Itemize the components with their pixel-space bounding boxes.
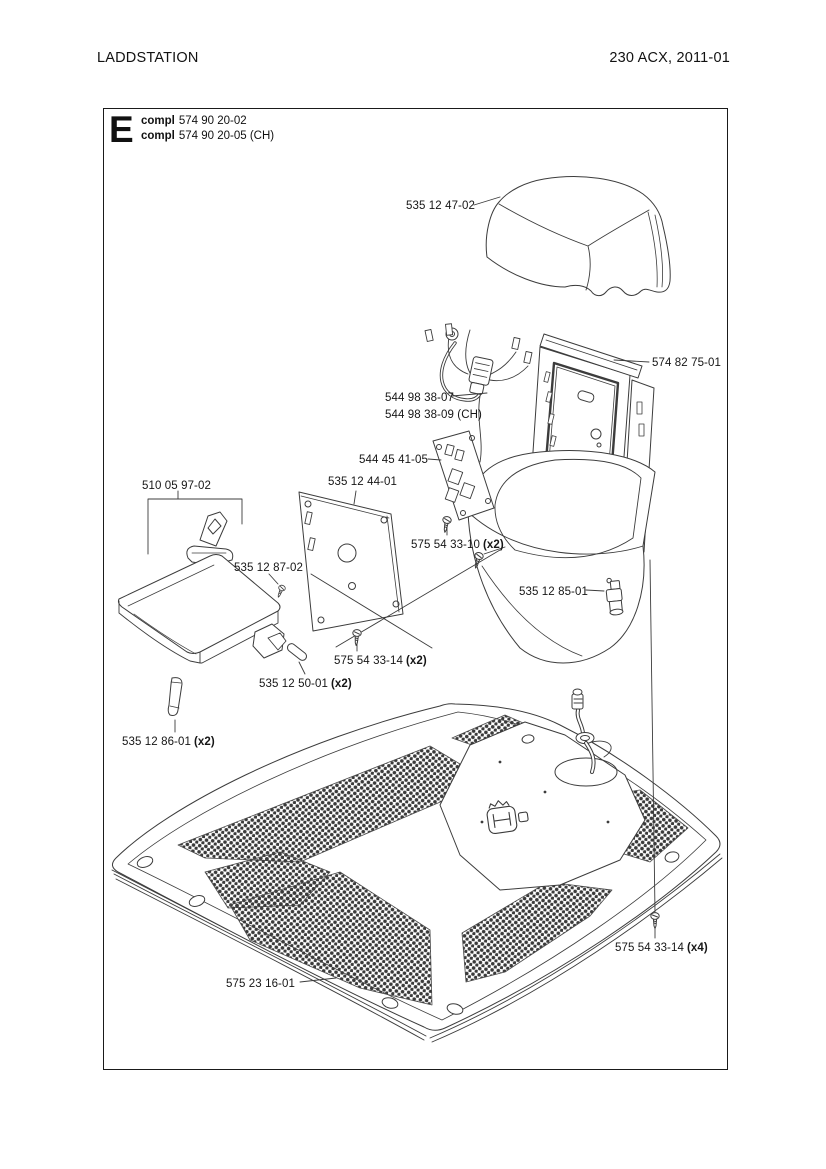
part-number: 575 54 33-14 xyxy=(334,655,403,667)
part-number: 535 12 86-01 xyxy=(122,736,191,748)
part-qty: (x2) xyxy=(194,736,215,748)
exploded-diagram xyxy=(0,0,826,1169)
part-label-mounting-plate: 535 12 44-01 xyxy=(328,475,397,489)
part-qty: (x2) xyxy=(406,655,427,667)
assembly-prefix: compl xyxy=(141,115,175,127)
part-number: 574 82 75-01 xyxy=(652,357,721,369)
assembly-value: 574 90 20-05 (CH) xyxy=(179,130,274,142)
part-number: 510 05 97-02 xyxy=(142,480,211,492)
part-number: 575 54 33-10 xyxy=(411,539,480,551)
part-qty: (x2) xyxy=(483,539,504,551)
part-label-screw-33-14-x4: 575 54 33-14(x4) xyxy=(615,941,708,955)
part-number: 535 12 47-02 xyxy=(406,200,475,212)
part-label-harness: 544 98 38-07 xyxy=(385,391,454,405)
part-number: 535 12 85-01 xyxy=(519,586,588,598)
part-number: 544 98 38-07 xyxy=(385,392,454,404)
part-label-base-plate: 575 23 16-01 xyxy=(226,977,295,991)
housing-base-drawing xyxy=(468,451,655,663)
part-number: 544 98 38-09 (CH) xyxy=(385,409,482,421)
part-label-circuit-board: 544 45 41-05 xyxy=(359,453,428,467)
assembly-prefix: compl xyxy=(141,130,175,142)
part-number: 535 12 50-01 xyxy=(259,678,328,690)
mounting-plate-drawing xyxy=(299,492,403,631)
part-qty: (x2) xyxy=(331,678,352,690)
part-number: 575 23 16-01 xyxy=(226,978,295,990)
part-qty: (x4) xyxy=(687,942,708,954)
assembly-value: 574 90 20-02 xyxy=(179,115,247,127)
top-cover-drawing xyxy=(486,177,670,296)
part-label-pin: 535 12 50-01(x2) xyxy=(259,677,352,691)
part-label-top-cover: 535 12 47-02 xyxy=(406,199,475,213)
part-label-screw-33-14-x2: 575 54 33-14(x2) xyxy=(334,654,427,668)
parts-diagram-page: LADDSTATION 230 ACX, 2011-01 xyxy=(0,0,826,1169)
assembly-number-1: compl574 90 20-02 xyxy=(141,114,247,129)
part-label-screw-87-02: 535 12 87-02 xyxy=(234,561,303,575)
part-number: 535 12 87-02 xyxy=(234,562,303,574)
part-label-hinge-kit: 510 05 97-02 xyxy=(142,479,211,493)
part-number: 575 54 33-14 xyxy=(615,942,684,954)
assembly-number-2: compl574 90 20-05 (CH) xyxy=(141,129,274,144)
part-number: 535 12 44-01 xyxy=(328,476,397,488)
part-number: 544 45 41-05 xyxy=(359,454,428,466)
part-label-screw-33-10: 575 54 33-10(x2) xyxy=(411,538,504,552)
part-label-rear-frame: 574 82 75-01 xyxy=(652,356,721,370)
part-label-clip: 535 12 86-01(x2) xyxy=(122,735,215,749)
part-label-harness-ch: 544 98 38-09 (CH) xyxy=(385,408,482,422)
section-letter: E xyxy=(109,111,134,148)
part-label-contact-bolt: 535 12 85-01 xyxy=(519,585,588,599)
